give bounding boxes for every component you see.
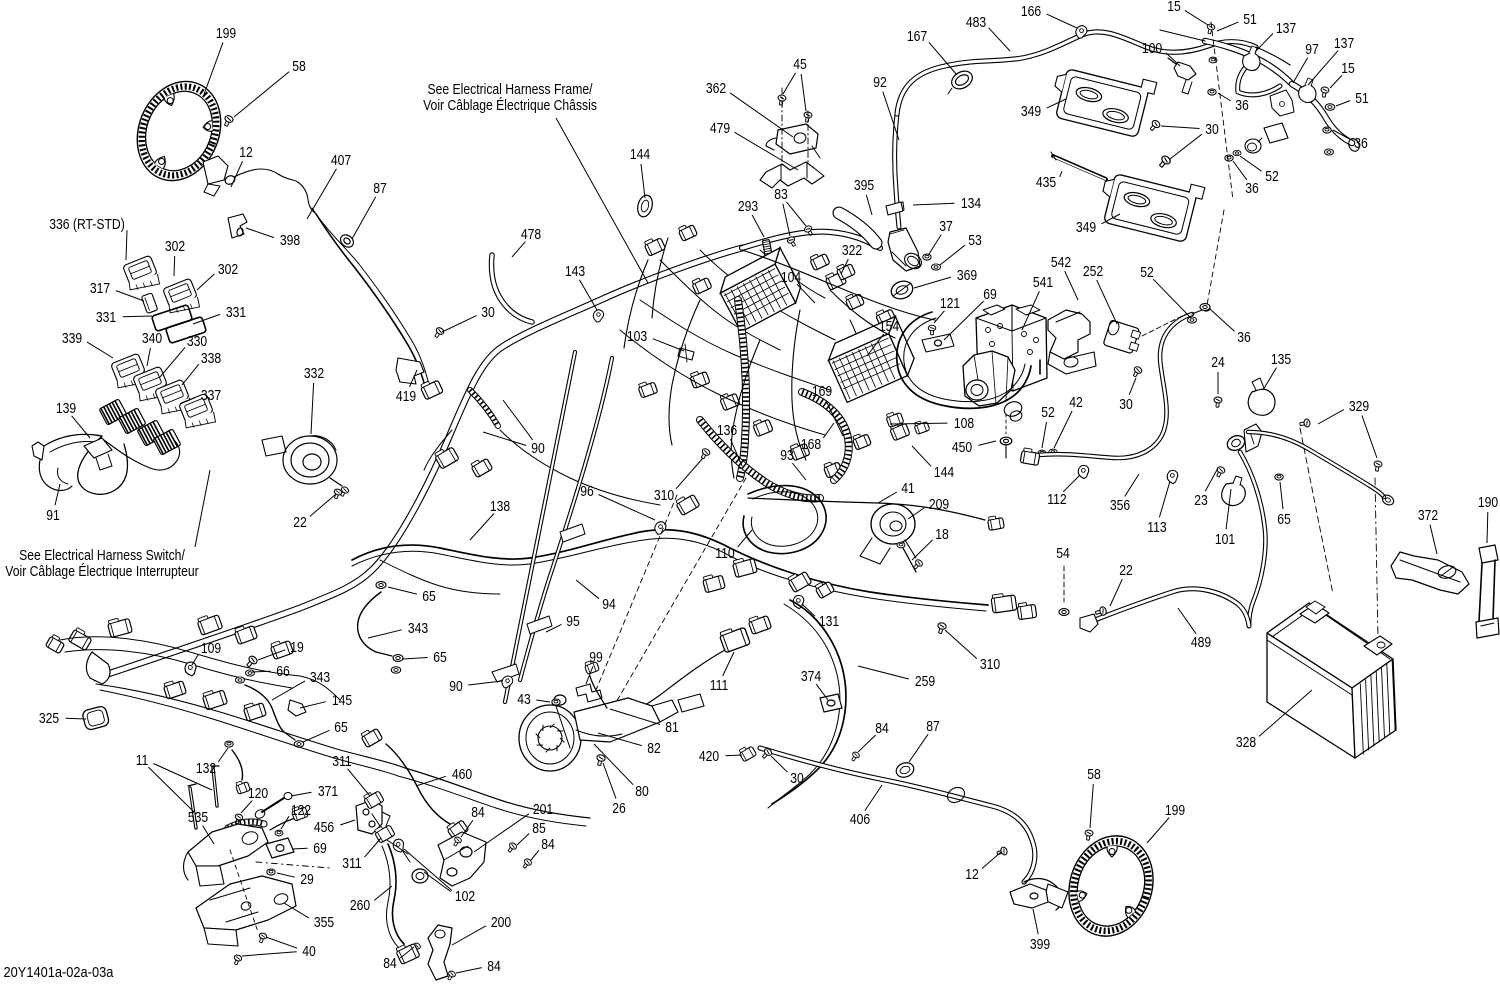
svg-text:109: 109: [201, 640, 221, 656]
svg-text:52: 52: [1140, 264, 1154, 280]
svg-text:169: 169: [812, 383, 832, 399]
svg-text:36: 36: [1237, 329, 1251, 345]
svg-text:343: 343: [310, 669, 330, 685]
svg-text:331: 331: [96, 309, 116, 325]
svg-text:52: 52: [1041, 404, 1055, 420]
svg-text:328: 328: [1236, 734, 1256, 750]
svg-text:69: 69: [313, 840, 327, 856]
svg-text:99: 99: [589, 649, 603, 665]
svg-text:84: 84: [471, 804, 485, 820]
svg-text:154: 154: [879, 318, 900, 334]
svg-text:65: 65: [422, 588, 436, 604]
svg-text:83: 83: [774, 186, 788, 202]
svg-text:311: 311: [332, 753, 351, 769]
svg-text:30: 30: [1119, 396, 1133, 412]
svg-text:293: 293: [738, 198, 758, 214]
svg-text:91: 91: [46, 507, 60, 523]
svg-text:311: 311: [342, 855, 361, 871]
svg-text:374: 374: [801, 668, 822, 684]
svg-text:104: 104: [781, 269, 802, 285]
svg-text:84: 84: [383, 955, 397, 971]
svg-text:137: 137: [1334, 35, 1354, 51]
svg-text:349: 349: [1021, 103, 1041, 119]
svg-text:19: 19: [290, 639, 304, 655]
svg-text:407: 407: [331, 152, 351, 168]
svg-text:310: 310: [654, 487, 674, 503]
svg-text:168: 168: [801, 436, 821, 452]
svg-text:93: 93: [780, 447, 794, 463]
svg-text:332: 332: [304, 365, 324, 381]
svg-text:134: 134: [961, 195, 982, 211]
svg-text:199: 199: [216, 25, 236, 41]
svg-text:167: 167: [907, 28, 927, 44]
svg-text:30: 30: [1205, 121, 1219, 137]
svg-text:489: 489: [1191, 634, 1211, 650]
svg-text:30: 30: [790, 770, 804, 786]
svg-text:343: 343: [408, 620, 428, 636]
svg-text:369: 369: [957, 267, 977, 283]
svg-text:399: 399: [1030, 936, 1050, 952]
svg-text:42: 42: [1069, 394, 1083, 410]
svg-text:135: 135: [1271, 351, 1291, 367]
svg-text:209: 209: [929, 496, 949, 512]
svg-text:101: 101: [1215, 531, 1235, 547]
svg-text:331: 331: [226, 304, 246, 320]
svg-text:23: 23: [1194, 492, 1208, 508]
svg-text:30: 30: [481, 304, 495, 320]
svg-text:113: 113: [1147, 519, 1166, 535]
svg-text:20Y1401a-02a-03a: 20Y1401a-02a-03a: [4, 964, 114, 980]
svg-text:51: 51: [1243, 11, 1257, 27]
svg-text:372: 372: [1418, 507, 1438, 523]
svg-text:58: 58: [1087, 766, 1101, 782]
svg-text:108: 108: [954, 415, 974, 431]
svg-text:541: 541: [1033, 274, 1053, 290]
svg-text:81: 81: [665, 719, 679, 735]
svg-text:479: 479: [710, 120, 730, 136]
svg-text:22: 22: [293, 514, 307, 530]
svg-text:535: 535: [188, 809, 208, 825]
svg-text:65: 65: [433, 649, 447, 665]
svg-text:87: 87: [926, 718, 940, 734]
svg-text:456: 456: [314, 819, 334, 835]
svg-text:337: 337: [201, 387, 221, 403]
svg-text:144: 144: [630, 146, 651, 162]
svg-text:112: 112: [1047, 491, 1066, 507]
svg-text:131: 131: [819, 613, 839, 629]
svg-text:22: 22: [1119, 562, 1133, 578]
svg-text:41: 41: [901, 480, 915, 496]
svg-text:483: 483: [966, 14, 986, 30]
svg-text:329: 329: [1349, 398, 1369, 414]
svg-text:100: 100: [1142, 40, 1162, 56]
svg-text:356: 356: [1110, 497, 1130, 513]
svg-text:145: 145: [332, 692, 352, 708]
svg-text:310: 310: [980, 656, 1000, 672]
svg-text:338: 338: [201, 350, 221, 366]
svg-text:Voir Câblage Électrique Châssi: Voir Câblage Électrique Châssis: [423, 97, 597, 113]
svg-text:302: 302: [165, 238, 185, 254]
svg-text:371: 371: [318, 783, 338, 799]
svg-text:419: 419: [396, 388, 416, 404]
svg-text:340: 340: [142, 330, 162, 346]
svg-text:92: 92: [873, 74, 887, 90]
svg-text:355: 355: [314, 914, 334, 930]
svg-text:37: 37: [939, 218, 953, 234]
svg-text:330: 330: [187, 333, 207, 349]
svg-text:102: 102: [455, 888, 475, 904]
svg-text:52: 52: [1265, 168, 1279, 184]
svg-text:144: 144: [934, 464, 955, 480]
svg-text:406: 406: [850, 811, 870, 827]
svg-text:139: 139: [56, 400, 76, 416]
svg-text:96: 96: [580, 483, 594, 499]
svg-text:65: 65: [334, 719, 348, 735]
svg-text:See Electrical Harness Frame/: See Electrical Harness Frame/: [428, 81, 593, 97]
svg-text:136: 136: [717, 422, 737, 438]
svg-text:43: 43: [517, 691, 531, 707]
svg-text:18: 18: [935, 526, 949, 542]
svg-text:137: 137: [1276, 20, 1296, 36]
svg-text:84: 84: [487, 958, 501, 974]
svg-text:190: 190: [1478, 494, 1498, 510]
svg-text:110: 110: [715, 545, 734, 561]
svg-text:325: 325: [39, 710, 59, 726]
svg-text:65: 65: [1277, 511, 1291, 527]
svg-text:11: 11: [136, 752, 149, 768]
svg-text:478: 478: [521, 226, 541, 242]
svg-text:259: 259: [915, 673, 935, 689]
svg-text:85: 85: [532, 820, 546, 836]
svg-text:12: 12: [239, 144, 253, 160]
svg-text:84: 84: [875, 720, 889, 736]
svg-text:53: 53: [968, 232, 982, 248]
svg-text:82: 82: [647, 740, 661, 756]
svg-text:45: 45: [793, 56, 807, 72]
svg-text:317: 317: [90, 280, 110, 296]
svg-text:Voir Câblage Électrique Interr: Voir Câblage Électrique Interrupteur: [5, 563, 199, 579]
svg-text:435: 435: [1036, 174, 1056, 190]
svg-text:84: 84: [541, 836, 555, 852]
svg-text:336 (RT-STD): 336 (RT-STD): [49, 216, 124, 232]
svg-text:362: 362: [706, 80, 726, 96]
svg-text:36: 36: [1354, 135, 1368, 151]
svg-text:40: 40: [302, 943, 316, 959]
svg-text:252: 252: [1083, 263, 1103, 279]
svg-text:121: 121: [940, 295, 960, 311]
svg-text:120: 120: [248, 785, 268, 801]
svg-text:15: 15: [1167, 0, 1181, 14]
svg-text:420: 420: [699, 748, 719, 764]
svg-text:199: 199: [1165, 802, 1185, 818]
svg-text:94: 94: [602, 596, 616, 612]
svg-text:58: 58: [292, 58, 306, 74]
svg-text:36: 36: [1245, 180, 1259, 196]
svg-text:97: 97: [1305, 41, 1319, 57]
svg-text:90: 90: [531, 440, 545, 456]
svg-text:51: 51: [1355, 90, 1369, 106]
svg-text:29: 29: [300, 871, 314, 887]
svg-text:See Electrical Harness Switch/: See Electrical Harness Switch/: [19, 547, 185, 563]
svg-text:395: 395: [854, 177, 874, 193]
svg-text:54: 54: [1056, 545, 1070, 561]
svg-text:66: 66: [276, 663, 290, 679]
svg-text:80: 80: [635, 783, 649, 799]
svg-text:166: 166: [1021, 3, 1041, 19]
svg-text:111: 111: [710, 677, 728, 693]
svg-text:87: 87: [373, 180, 387, 196]
svg-text:90: 90: [449, 678, 463, 694]
svg-text:542: 542: [1051, 254, 1071, 270]
svg-text:132: 132: [196, 760, 216, 776]
svg-text:95: 95: [566, 613, 580, 629]
svg-text:349: 349: [1076, 219, 1096, 235]
svg-text:450: 450: [952, 439, 972, 455]
svg-text:339: 339: [62, 330, 82, 346]
svg-text:260: 260: [350, 897, 370, 913]
svg-text:143: 143: [565, 263, 585, 279]
svg-text:200: 200: [491, 914, 511, 930]
svg-text:69: 69: [983, 286, 997, 302]
svg-text:201: 201: [533, 801, 553, 817]
svg-text:322: 322: [842, 242, 862, 258]
svg-text:138: 138: [490, 498, 510, 514]
svg-text:15: 15: [1341, 60, 1355, 76]
svg-text:302: 302: [218, 261, 238, 277]
svg-text:24: 24: [1211, 354, 1225, 370]
svg-text:36: 36: [1235, 97, 1249, 113]
svg-text:26: 26: [612, 800, 626, 816]
svg-text:398: 398: [280, 232, 300, 248]
svg-text:122: 122: [291, 802, 311, 818]
svg-text:460: 460: [452, 766, 472, 782]
svg-text:12: 12: [965, 866, 979, 882]
svg-text:103: 103: [627, 328, 647, 344]
